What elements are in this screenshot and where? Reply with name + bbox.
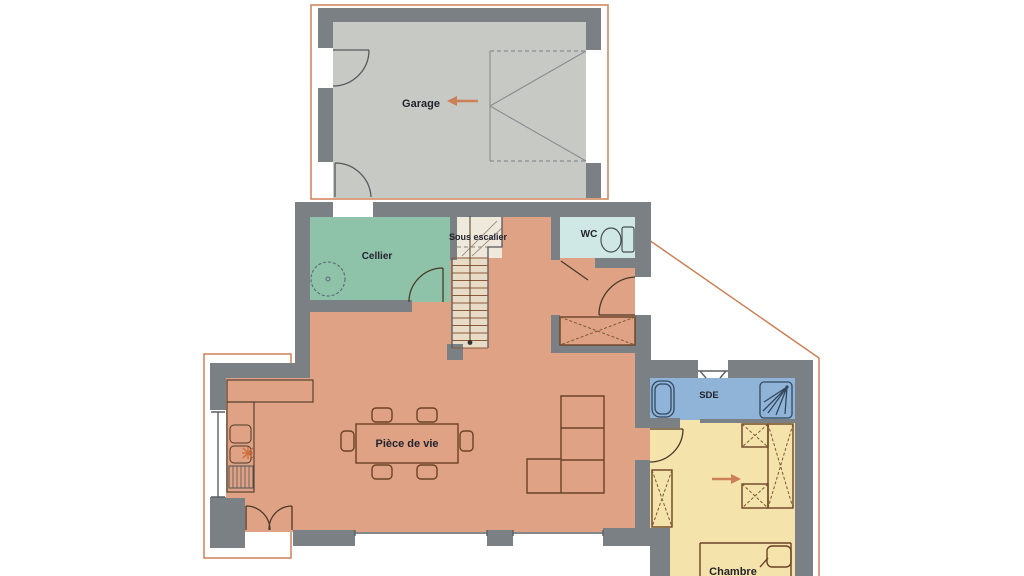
wc-wall-bottom [595,258,651,268]
corner-block-southwest [210,498,245,548]
floor-plan-canvas: Garage Cellier Sous escalier WC Pièce de… [0,0,1024,576]
chambre-label: Chambre [709,566,757,576]
cellier-label: Cellier [362,251,393,262]
wc-label: WC [581,229,598,240]
garage-wall-right-a [586,22,601,50]
garage-wall-right-b [586,163,601,198]
chambre-wall-left [635,460,650,528]
cellier-wall-bottom [310,300,412,312]
main-wall-bottom-b [487,530,513,546]
floor-plan: Garage Cellier Sous escalier WC Pièce de… [0,0,1024,576]
stair-stub-wall [447,344,463,360]
piece-de-vie-label: Pièce de vie [376,438,439,450]
stair-walk-line-start [468,340,473,345]
sous-escalier-label: Sous escalier [449,232,508,242]
sde-wall-bottom [635,418,680,428]
main-wall-step [210,363,310,378]
main-wall-top-b [373,202,651,217]
main-wall-right-b [635,315,651,362]
faucet-icon [242,447,254,459]
garage-wall-top [318,8,601,22]
sde-label: SDE [699,390,719,401]
garage-cellier-door-gap [333,202,373,217]
garage-label: Garage [402,98,440,110]
kitchen-appliance [229,466,253,488]
chambre-door-gap [635,428,650,460]
closet-wall-bottom [551,345,637,353]
chambre-wall-right [795,360,813,576]
main-wall-left-lower-a [210,378,226,410]
patio-wall-vertical [650,528,670,576]
garage-wall-left-b [318,88,333,162]
garage-wall-left-a [318,22,333,48]
garage-floor [333,20,586,198]
main-wall-top-a [295,202,333,217]
main-wall-bottom-a [293,530,355,546]
main-wall-left-upper [295,217,310,366]
wc-wall-left [551,217,560,260]
